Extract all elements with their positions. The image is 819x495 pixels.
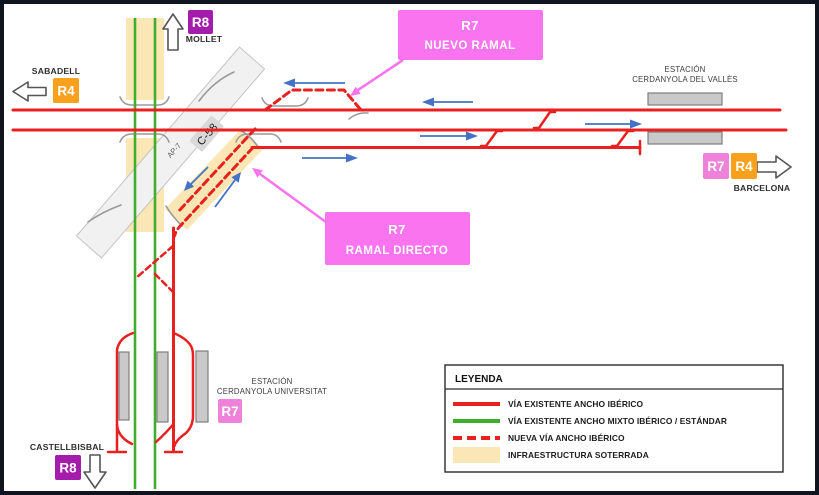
- platform: [648, 132, 722, 144]
- direction-arrow-left-icon: [422, 98, 434, 107]
- nuevo-ramal-track: [265, 90, 361, 110]
- callout-line1: R7: [461, 18, 479, 33]
- callout-line2: RAMAL DIRECTO: [346, 245, 449, 257]
- badge-r4-barcelona-label: R4: [735, 159, 753, 174]
- callout-box: [325, 212, 470, 265]
- legend-item-label: INFRAESTRUCTURA SOTERRADA: [508, 450, 649, 460]
- legend: LEYENDA VÍA EXISTENTE ANCHO IBÉRICO VÍA …: [445, 365, 783, 472]
- castellbisbal-label: CASTELLBISBAL: [30, 442, 104, 452]
- station-link: [156, 424, 174, 442]
- badge-r7-barcelona-label: R7: [707, 159, 724, 174]
- direction-arrow-left-icon: [283, 79, 295, 88]
- badge-r7-universitat-label: R7: [221, 404, 238, 419]
- platform: [157, 352, 168, 422]
- sabadell-arrow-icon: [13, 82, 46, 101]
- legend-item-label: NUEVA VÍA ANCHO IBÉRICO: [508, 432, 625, 443]
- castellbisbal-arrow-icon: [84, 455, 106, 488]
- badge-r8-mollet-label: R8: [192, 15, 210, 30]
- rail-diagram: AP-7 C-58: [0, 0, 819, 495]
- callout-line2: NUEVO RAMAL: [424, 40, 515, 52]
- direction-arrow-right-icon: [346, 154, 358, 163]
- new-crossover: [155, 274, 173, 292]
- sabadell-label: SABADELL: [32, 66, 80, 76]
- callout-line1: R7: [388, 222, 406, 237]
- crossover: [481, 131, 502, 146]
- callout-nuevo-ramal: R7 NUEVO RAMAL: [350, 10, 543, 96]
- legend-item-label: VÍA EXISTENTE ANCHO MIXTO IBÉRICO / ESTÁ…: [508, 415, 727, 426]
- underground-band-top: [126, 18, 164, 100]
- barcelona-label: BARCELONA: [734, 183, 791, 193]
- station-universitat-name-line2: CERDANYOLA UNIVERSITAT: [217, 387, 327, 396]
- badge-r4-sabadell-label: R4: [57, 84, 75, 99]
- platform: [119, 352, 129, 420]
- platform: [648, 93, 722, 105]
- station-valles-name-line1: ESTACIÓN: [665, 65, 706, 74]
- crossover: [534, 112, 555, 128]
- tunnel-portal-icon: [349, 113, 368, 119]
- station-loop-right: [174, 333, 194, 446]
- station-link: [117, 425, 132, 444]
- crossover: [612, 131, 633, 146]
- legend-item-label: VÍA EXISTENTE ANCHO IBÉRICO: [508, 398, 644, 409]
- badge-r8-castellbisbal-label: R8: [59, 461, 77, 476]
- barcelona-arrow-icon: [757, 156, 791, 178]
- station-valles-name-line2: CERDANYOLA DEL VALLÈS: [632, 75, 738, 84]
- direction-arrow-right-icon: [630, 120, 642, 129]
- legend-title: LEYENDA: [455, 374, 503, 385]
- direction-arrow-right-icon: [466, 132, 478, 141]
- station-universitat-name-line1: ESTACIÓN: [252, 377, 293, 386]
- tunnel-portal-icon: [262, 98, 308, 106]
- legend-swatch-beige-area: [453, 447, 500, 463]
- mollet-arrow-icon: [163, 14, 183, 50]
- mollet-label: MOLLET: [186, 34, 223, 44]
- platform: [196, 351, 208, 422]
- callout-ramal-directo: R7 RAMAL DIRECTO: [252, 168, 470, 265]
- diagram-canvas: AP-7 C-58: [0, 0, 819, 495]
